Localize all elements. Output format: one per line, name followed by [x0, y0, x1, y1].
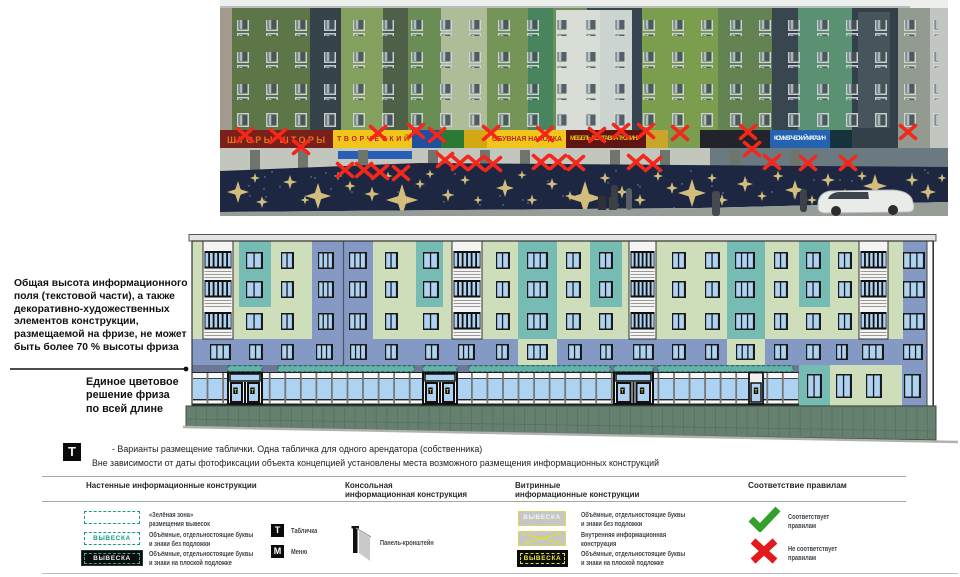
svg-text:Т: Т	[234, 389, 237, 395]
svg-text:Т: Т	[251, 389, 254, 395]
svg-text:Т: Т	[641, 389, 644, 395]
svg-text:Т: Т	[446, 389, 449, 395]
svg-text:Т: Т	[621, 389, 624, 395]
svg-text:Т: Т	[429, 389, 432, 395]
svg-text:КОММЕРЧЕСКИЙ МАГАЗИН: КОММЕРЧЕСКИЙ МАГАЗИН	[774, 134, 826, 142]
svg-text:Т: Т	[754, 389, 757, 395]
